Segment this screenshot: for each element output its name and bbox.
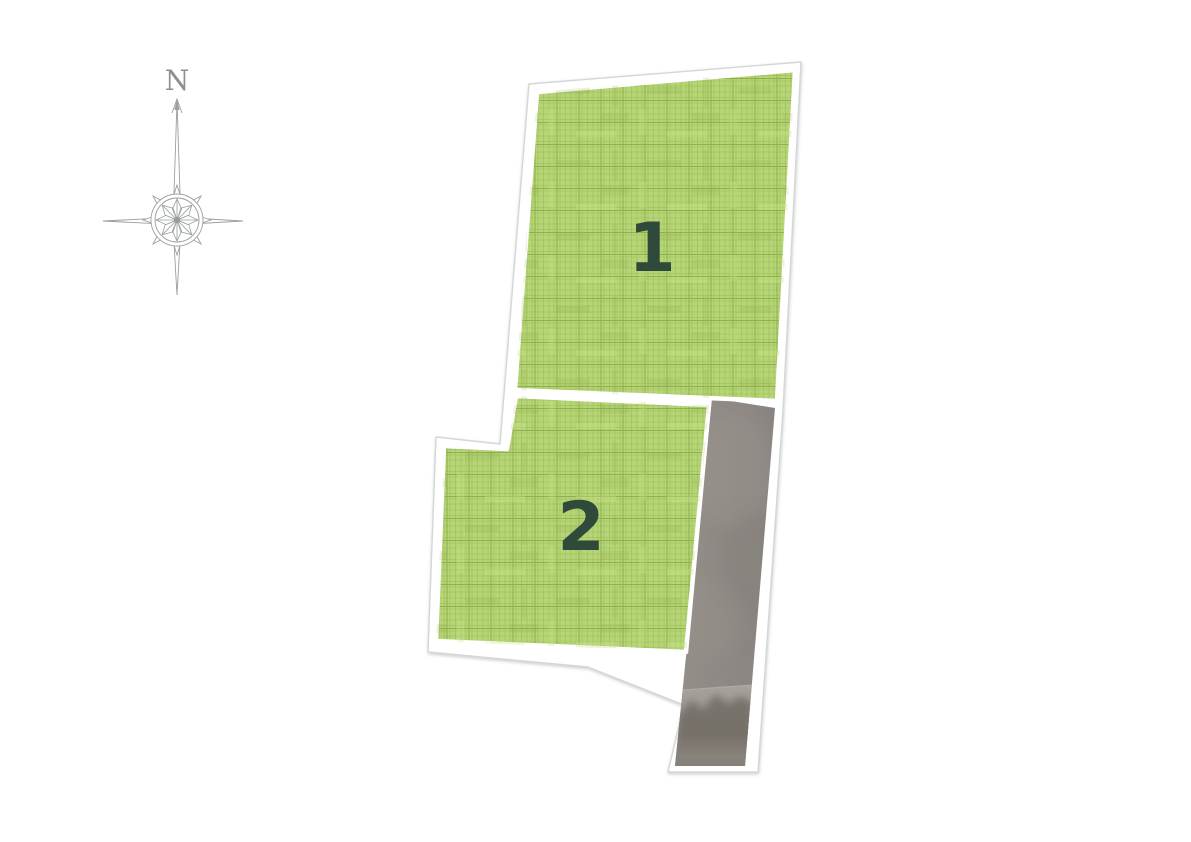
parcel-2[interactable]: 2 [436, 396, 709, 652]
parcel-2-number: 2 [557, 488, 604, 567]
site-plan-canvas: 1 2 [0, 0, 1191, 842]
parcel-1[interactable]: 1 [515, 70, 795, 401]
site-plan-svg: 1 2 [0, 0, 1191, 842]
compass-rose: N [103, 64, 243, 295]
parcel-1-number: 1 [628, 209, 675, 288]
compass-center-dot [174, 217, 180, 223]
compass-needle-north [174, 101, 180, 193]
compass-north-label: N [165, 64, 190, 97]
